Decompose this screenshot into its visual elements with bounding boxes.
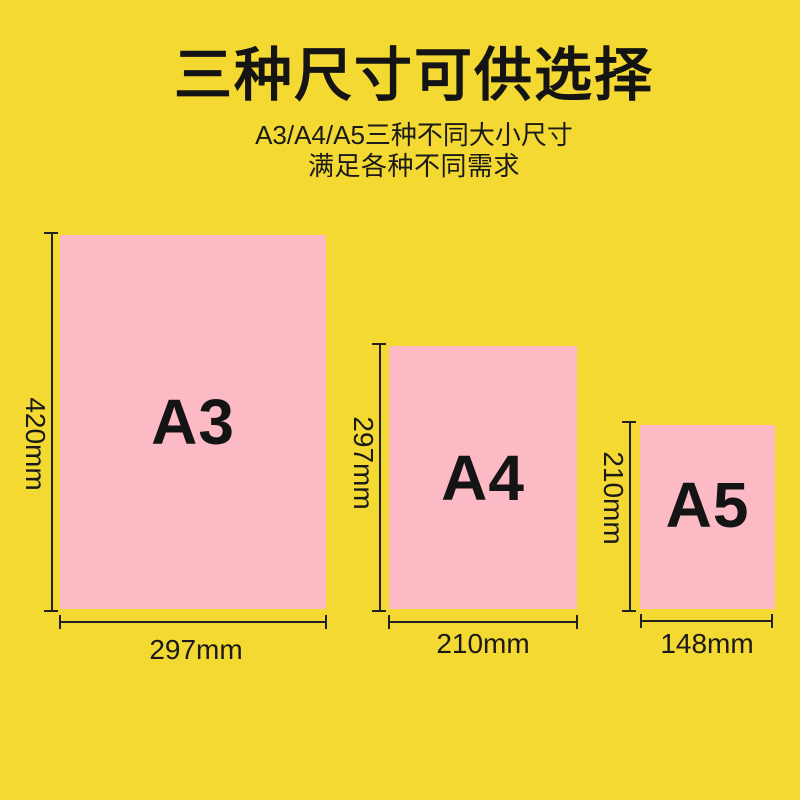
a5-width-label: 148mm [660,628,753,660]
a5-height-label: 210mm [597,451,629,544]
a4-width-dimension-right-tick [576,615,578,629]
a3-height-dimension-top-cap [44,232,58,234]
a3-height-dimension-line [51,233,53,612]
a3-height-label: 420mm [19,397,51,490]
a3-width-dimension-right-tick [325,615,327,629]
a4-height-dimension-bottom-cap [372,610,386,612]
size-comparison-banner: 三种尺寸可供选择 A3/A4/A5三种不同大小尺寸 满足各种不同需求 A3 42… [0,0,800,800]
a5-height-dimension-top-cap [622,421,636,423]
a5-width-dimension-right-tick [771,614,773,628]
a5-height-dimension-line [629,422,631,612]
paper-sheet-a5: A5 [640,425,775,609]
a4-height-label: 297mm [347,416,379,509]
paper-a3-label: A3 [151,385,235,459]
a3-width-dimension-line [60,621,326,623]
a5-width-dimension-line [641,620,773,622]
a4-width-label: 210mm [436,628,529,660]
a3-width-label: 297mm [149,634,242,666]
a3-height-dimension-bottom-cap [44,610,58,612]
a4-height-dimension-line [379,344,381,612]
subtitle-line-1: A3/A4/A5三种不同大小尺寸 [14,120,800,151]
a5-height-dimension-bottom-cap [622,610,636,612]
a4-width-dimension-left-tick [388,615,390,629]
a4-width-dimension-line [389,621,577,623]
a3-width-dimension-left-tick [59,615,61,629]
a4-height-dimension-top-cap [372,343,386,345]
paper-sheet-a4: A4 [389,346,577,609]
page-title: 三种尺寸可供选择 [14,44,800,108]
subtitle-line-2: 满足各种不同需求 [14,151,800,182]
paper-a5-label: A5 [666,468,750,542]
a5-width-dimension-left-tick [640,614,642,628]
paper-a4-label: A4 [441,441,525,515]
paper-sheet-a3: A3 [60,235,326,609]
